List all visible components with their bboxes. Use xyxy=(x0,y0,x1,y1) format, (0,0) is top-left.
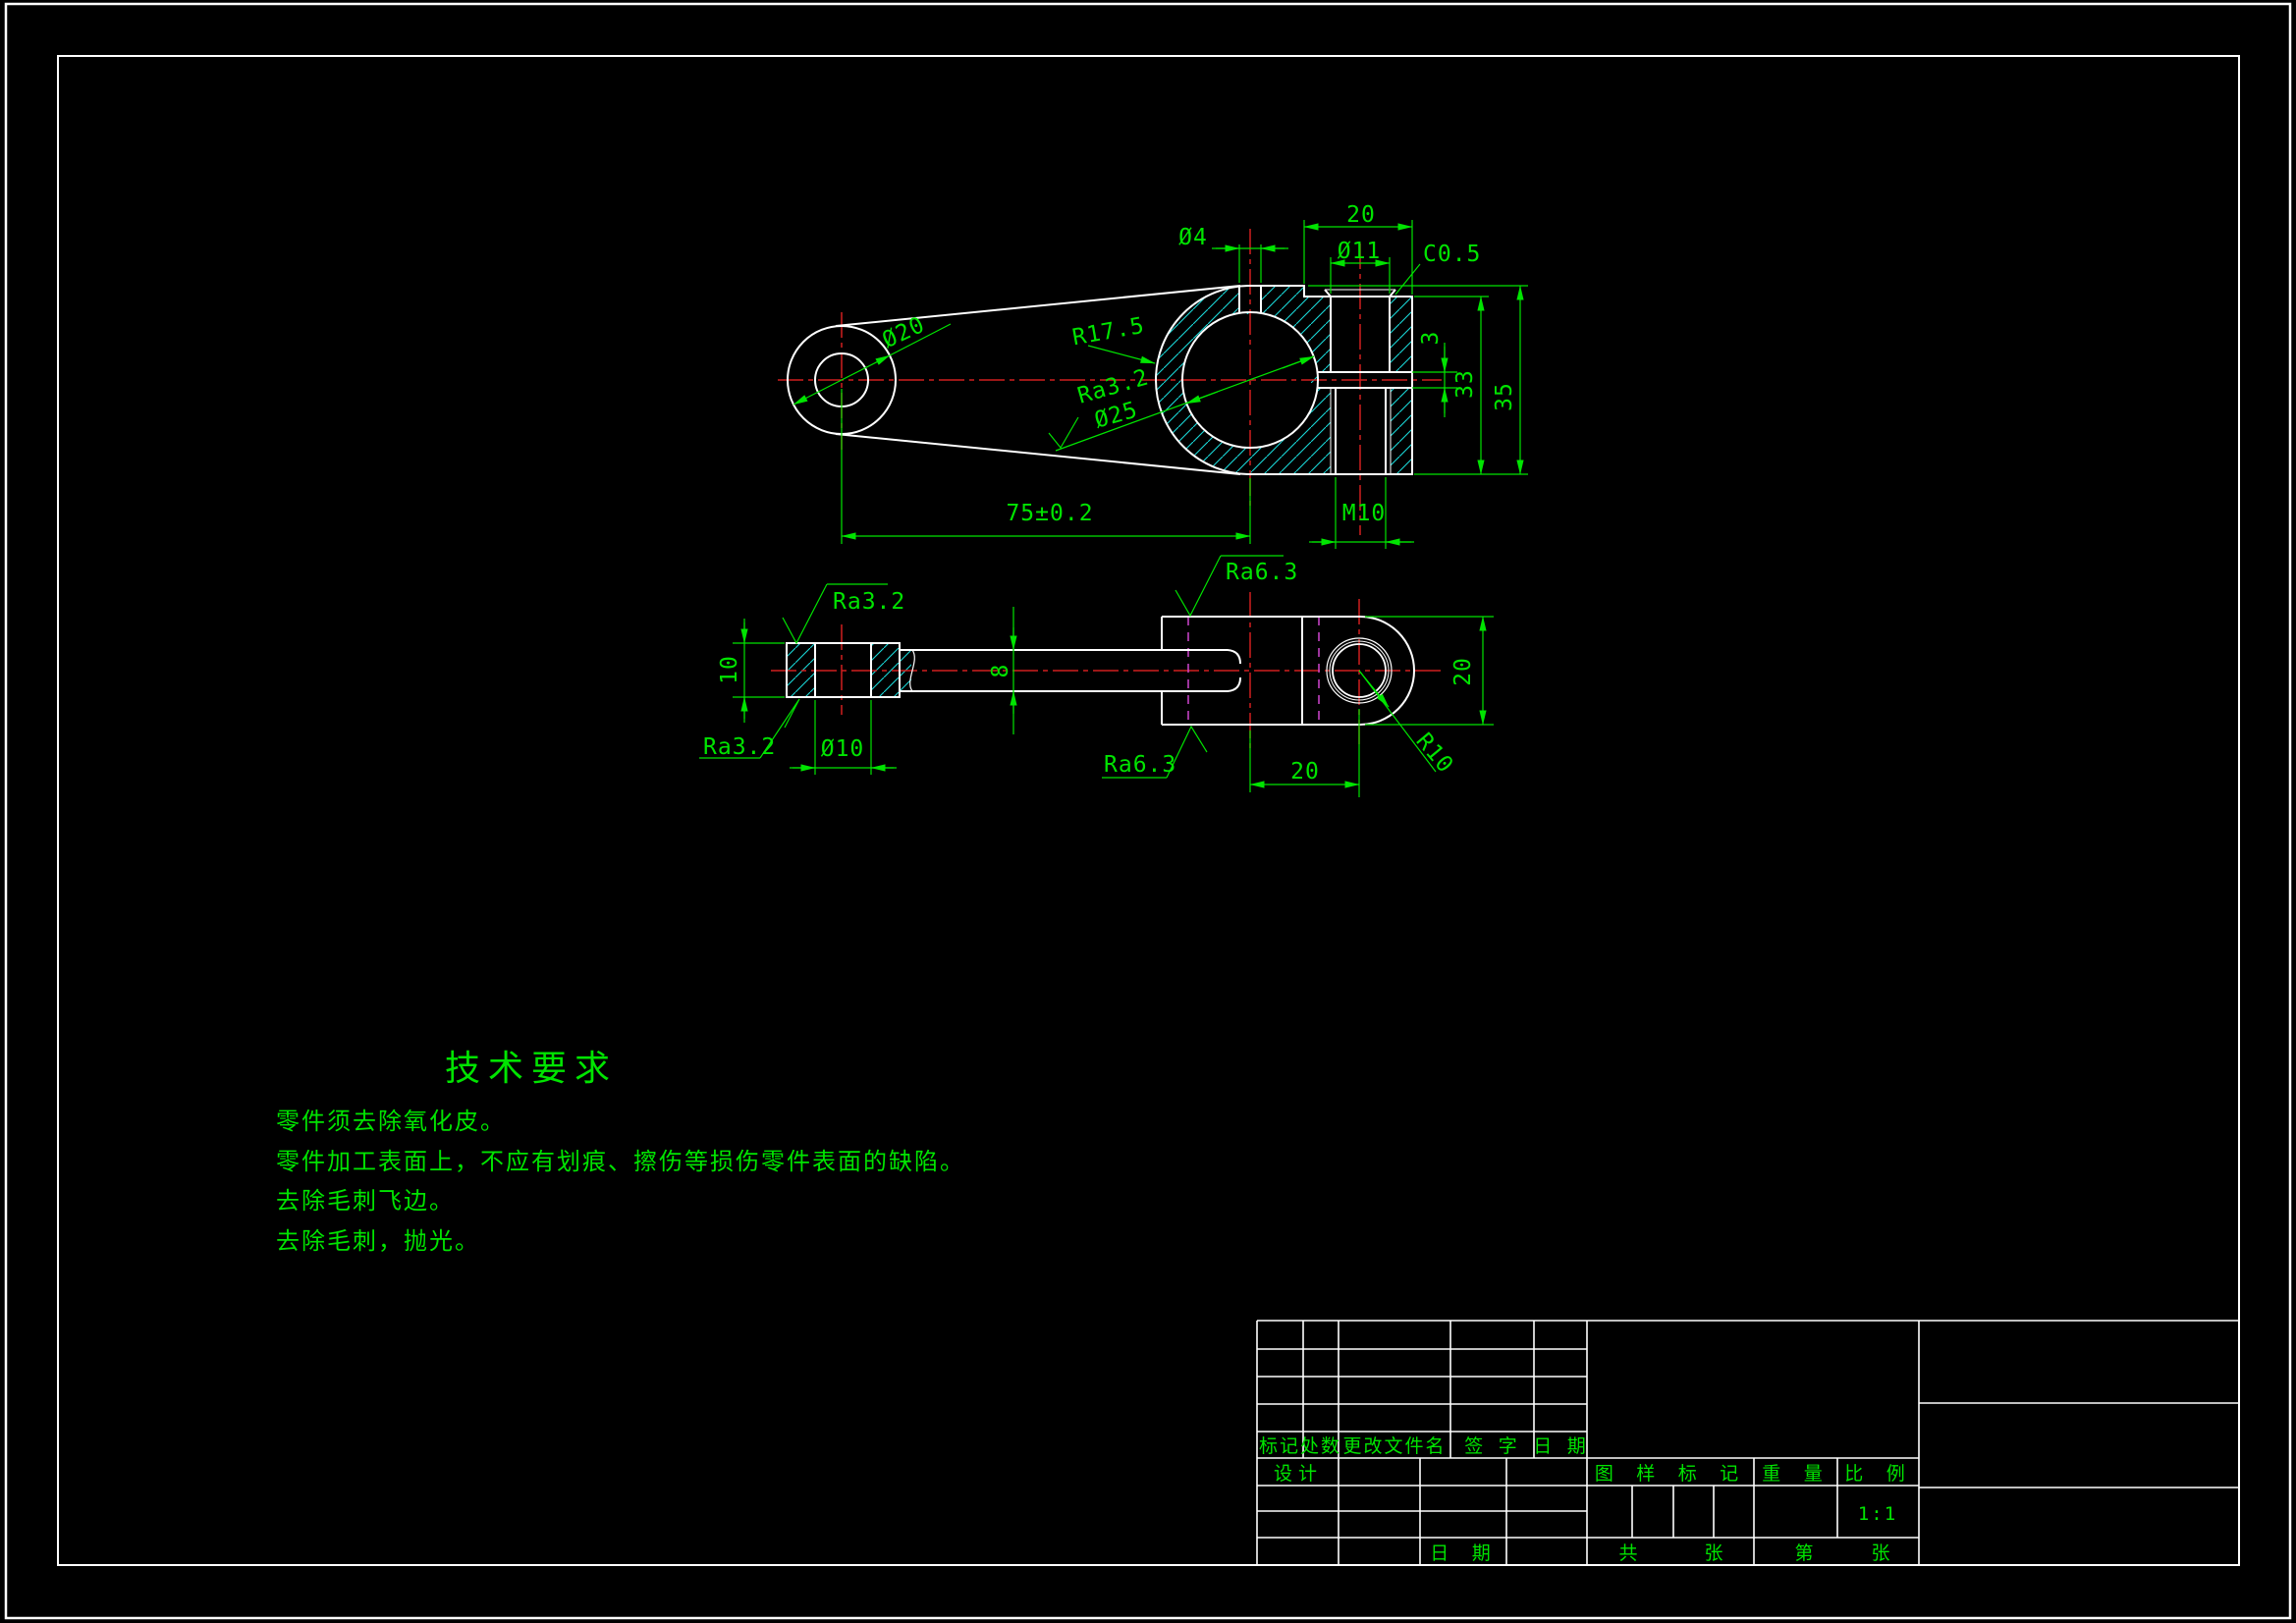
dim-fork-roughness-top: Ra6.3 xyxy=(1226,560,1298,585)
drawing-canvas: Ø20 Ø4 20 Ø11 C0.5 R17.5 Ra3.2 Ø25 3 33 … xyxy=(0,0,2296,1623)
front-view-dimensions xyxy=(699,556,1494,797)
tech-req-title: 技术要求 xyxy=(445,1049,618,1089)
dim-thread: M10 xyxy=(1342,501,1387,526)
sheet-number-suffix: 张 xyxy=(1871,1542,1891,1564)
dim-eye-offset: 20 xyxy=(1290,759,1320,784)
dim-eye-radius: R10 xyxy=(1410,729,1458,779)
dim-counterbore: Ø11 xyxy=(1338,239,1382,264)
surface-finish-symbol xyxy=(783,584,827,643)
weight-header: 重 量 xyxy=(1762,1463,1828,1485)
slot-top xyxy=(1162,650,1240,664)
dim-hub-hole: Ø10 xyxy=(821,736,865,762)
rev-file-header: 更改文件名 xyxy=(1342,1435,1446,1457)
cad-drawing-sheet: Ø20 Ø4 20 Ø11 C0.5 R17.5 Ra3.2 Ø25 3 33 … xyxy=(0,0,2296,1623)
slot-bottom xyxy=(1162,677,1240,691)
top-view: Ø20 Ø4 20 Ø11 C0.5 R17.5 Ra3.2 Ø25 3 33 … xyxy=(778,202,1528,549)
dim-inner-height: 33 xyxy=(1452,369,1478,399)
dim-clamp-height: 35 xyxy=(1492,382,1517,411)
dim-ear-width: 20 xyxy=(1346,202,1376,228)
date-label: 日 期 xyxy=(1430,1542,1496,1564)
sheets-total-prefix: 共 xyxy=(1618,1542,1639,1564)
dim-chamfer: C0.5 xyxy=(1423,242,1481,267)
dim-center-distance: 75±0.2 xyxy=(1006,501,1093,526)
sheet-border xyxy=(6,4,2290,1618)
surface-finish-symbol xyxy=(1049,417,1078,448)
sheets-total-suffix: 张 xyxy=(1704,1542,1724,1564)
rev-count-header: 处数 xyxy=(1300,1435,1341,1457)
surface-finish-symbol xyxy=(1175,556,1221,616)
stamp-header: 图 样 标 记 xyxy=(1595,1463,1744,1485)
dim-shaft-height: 8 xyxy=(988,664,1013,678)
tech-req-line: 去除毛刺，抛光。 xyxy=(276,1227,480,1255)
dim-slit: 3 xyxy=(1418,331,1444,346)
dim-pin-hole: Ø4 xyxy=(1178,225,1208,250)
dim-outer-radius: R17.5 xyxy=(1070,313,1147,351)
tech-req-line: 去除毛刺飞边。 xyxy=(276,1187,455,1215)
rev-sign-header: 签 字 xyxy=(1464,1435,1518,1457)
front-view: 10 Ø10 Ra3.2 Ra3.2 8 Ra6.3 Ra6.3 20 20 R… xyxy=(699,556,1494,797)
dim-hub-height: 10 xyxy=(717,655,742,684)
technical-requirements: 技术要求 零件须去除氧化皮。 零件加工表面上，不应有划痕、擦伤等损伤零件表面的缺… xyxy=(276,1049,965,1255)
tech-req-line: 零件加工表面上，不应有划痕、擦伤等损伤零件表面的缺陷。 xyxy=(276,1148,965,1175)
design-label: 设计 xyxy=(1274,1463,1323,1485)
rev-mark-header: 标记 xyxy=(1259,1435,1300,1457)
dim-hub-roughness-top: Ra3.2 xyxy=(833,589,905,615)
rev-date-header: 日 期 xyxy=(1533,1435,1587,1457)
dim-hub-roughness-bottom: Ra3.2 xyxy=(703,734,776,760)
dim-eye-height: 20 xyxy=(1450,657,1476,686)
sheet-number-prefix: 第 xyxy=(1794,1542,1815,1564)
title-block: 标记 处数 更改文件名 签 字 日 期 设计 日 期 图 样 标 记 重 量 比… xyxy=(1257,1321,2239,1565)
top-view-labels: Ø20 Ø4 20 Ø11 C0.5 R17.5 Ra3.2 Ø25 3 33 … xyxy=(879,202,1517,526)
scale-value: 1:1 xyxy=(1858,1503,1897,1525)
title-block-labels: 标记 处数 更改文件名 签 字 日 期 设计 日 期 图 样 标 记 重 量 比… xyxy=(1259,1435,1911,1564)
scale-header: 比 例 xyxy=(1844,1463,1910,1485)
tech-req-line: 零件须去除氧化皮。 xyxy=(276,1108,506,1135)
dim-fork-roughness-bottom: Ra6.3 xyxy=(1104,752,1176,778)
